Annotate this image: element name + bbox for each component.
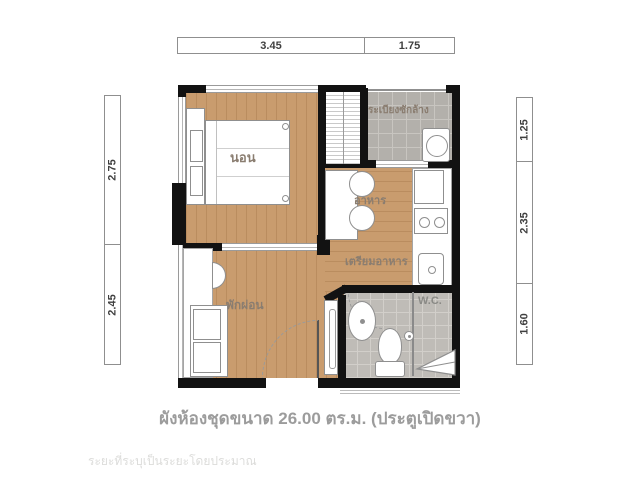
label-kitchen: เตรียมอาหาร — [345, 252, 408, 270]
sofa-cushion — [193, 309, 221, 340]
bathroom-top-wall — [342, 285, 452, 293]
corridor-line — [340, 390, 460, 394]
bathroom-left-wall — [338, 295, 346, 378]
label-wc: W.C. — [418, 295, 442, 307]
blanket-fold — [216, 121, 217, 204]
balcony-sliding-door — [376, 160, 430, 168]
dim-right-3-label: 1.60 — [519, 313, 531, 334]
refrigerator — [414, 170, 444, 204]
dimension-bar-left: 2.75 2.45 — [104, 95, 121, 365]
dim-right-2: 2.35 — [517, 161, 532, 283]
kitchen-sink — [418, 253, 444, 285]
bedroom-side-window — [178, 97, 186, 183]
wall-segment — [452, 85, 460, 388]
stove — [414, 208, 448, 234]
sofa — [190, 305, 228, 377]
wardrobe — [322, 88, 364, 168]
dim-left-2: 2.45 — [105, 244, 120, 364]
wall-segment — [172, 183, 186, 245]
burner-icon — [434, 217, 445, 228]
bed-seam — [217, 176, 289, 177]
drain-icon — [428, 266, 436, 274]
toilet-bowl — [378, 328, 402, 364]
approx-distance-watermark: ระยะที่ระบุเป็นระยะโดยประมาณ — [88, 452, 257, 471]
pillow — [190, 166, 203, 196]
sofa-cushion — [193, 342, 221, 373]
shower-dot — [408, 335, 411, 338]
dim-right-3: 1.60 — [517, 283, 532, 364]
floor-plan: นอน ระเบียงซักล้าง อาหาร เตรียมอาหาร พัก… — [178, 85, 460, 397]
entrance-door-swing — [262, 320, 318, 378]
bathroom-door-panel — [324, 300, 338, 375]
balcony-left-wall — [360, 88, 368, 168]
dim-left-2-label: 2.45 — [107, 294, 119, 315]
dim-top-1: 3.45 — [178, 38, 364, 53]
label-living: พักผ่อน — [226, 296, 264, 315]
door-arc-icon — [262, 320, 318, 378]
label-balcony: ระเบียงซักล้าง — [368, 103, 429, 118]
plan-caption: ผังห้องชุดขนาด 26.00 ตร.ม. (ประตูเปิดขวา… — [0, 405, 640, 432]
door-handle-slot — [329, 309, 336, 369]
shower-corner-shelf — [416, 349, 456, 377]
washing-machine — [422, 128, 450, 162]
dim-right-1-label: 1.25 — [519, 119, 531, 140]
burner-icon — [419, 217, 430, 228]
bedroom-window — [206, 85, 320, 93]
washer-drum-icon — [426, 135, 448, 157]
balcony-railing — [364, 89, 450, 91]
pillow — [190, 130, 203, 162]
wall-segment — [178, 378, 266, 388]
dim-right-1: 1.25 — [517, 98, 532, 161]
wall-segment — [318, 378, 460, 388]
dim-left-1: 2.75 — [105, 96, 120, 244]
toilet-tank — [375, 361, 405, 377]
basin-drain-icon — [360, 319, 365, 324]
wardrobe-divider — [343, 92, 344, 164]
dim-top-2: 1.75 — [364, 38, 454, 53]
washbasin — [348, 301, 376, 341]
dim-right-2-label: 2.35 — [519, 212, 531, 233]
label-bedroom: นอน — [230, 147, 256, 168]
dim-left-1-label: 2.75 — [107, 159, 119, 180]
label-dining: อาหาร — [354, 191, 386, 209]
bedroom-sliding-door — [222, 243, 318, 251]
dimension-bar-right: 1.25 2.35 1.60 — [516, 97, 533, 365]
bed-corner-knob — [282, 123, 289, 130]
dimension-bar-top: 3.45 1.75 — [177, 37, 455, 54]
bed-corner-knob — [282, 195, 289, 202]
floorplan-page: { "caption": "ผังห้องชุดขนาด 26.00 ตร.ม.… — [0, 0, 640, 480]
shower-head-icon — [404, 331, 414, 341]
